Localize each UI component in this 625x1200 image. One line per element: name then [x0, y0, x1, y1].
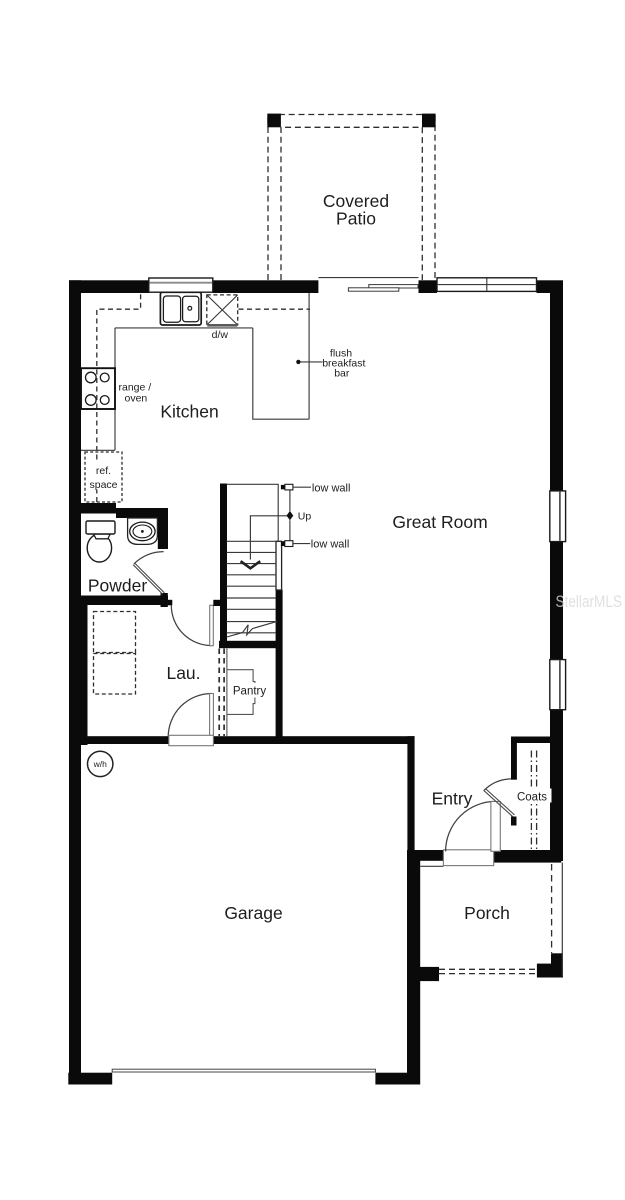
- svg-text:Patio: Patio: [336, 209, 376, 229]
- svg-text:w/h: w/h: [93, 759, 108, 769]
- svg-text:low wall: low wall: [311, 539, 350, 551]
- svg-text:StellarMLS: StellarMLS: [556, 592, 623, 611]
- svg-text:oven: oven: [125, 393, 148, 405]
- svg-text:Garage: Garage: [224, 903, 282, 923]
- svg-text:Great Room: Great Room: [392, 512, 487, 532]
- svg-text:Pantry: Pantry: [233, 686, 266, 698]
- svg-text:Up: Up: [298, 511, 312, 523]
- svg-text:Powder: Powder: [88, 576, 148, 596]
- svg-text:Kitchen: Kitchen: [160, 402, 218, 422]
- svg-text:bar: bar: [334, 367, 350, 379]
- svg-text:Coats: Coats: [517, 791, 547, 803]
- svg-text:Lau.: Lau.: [166, 663, 200, 683]
- svg-text:low wall: low wall: [312, 482, 351, 494]
- svg-text:Porch: Porch: [464, 903, 510, 923]
- svg-text:Entry: Entry: [432, 789, 473, 809]
- svg-text:space: space: [89, 479, 117, 491]
- svg-text:ref.: ref.: [96, 465, 111, 477]
- svg-text:d/w: d/w: [212, 329, 229, 341]
